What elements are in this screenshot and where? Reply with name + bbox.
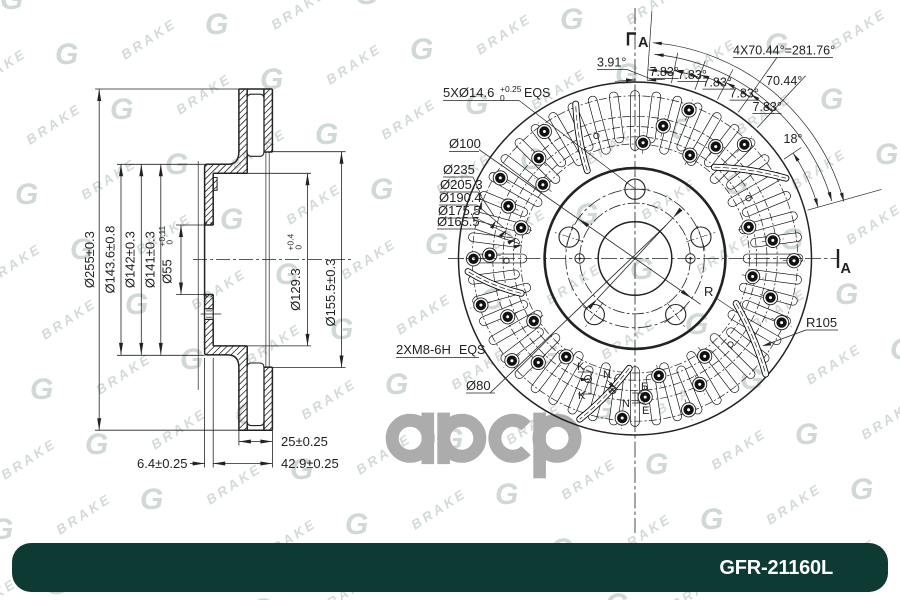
svg-text:Ø143.6±0.8: Ø143.6±0.8 <box>103 226 118 294</box>
svg-text:E: E <box>642 405 649 417</box>
svg-text:G: G <box>0 0 23 16</box>
svg-text:7.83°: 7.83° <box>753 100 782 114</box>
svg-text:G: G <box>820 83 843 116</box>
svg-text:N: N <box>622 398 630 410</box>
svg-text:Ø55: Ø55 <box>160 259 175 284</box>
svg-text:42.9±0.25: 42.9±0.25 <box>281 456 339 471</box>
svg-text:G: G <box>180 343 203 376</box>
svg-text:7.83°: 7.83° <box>703 76 732 90</box>
svg-text:G: G <box>890 333 900 366</box>
svg-text:Ø155.5±0.3: Ø155.5±0.3 <box>323 259 338 327</box>
svg-text:0: 0 <box>165 240 175 245</box>
svg-text:G: G <box>55 38 78 71</box>
svg-text:G: G <box>110 93 133 126</box>
svg-text:25±0.25: 25±0.25 <box>281 434 328 449</box>
svg-text:G: G <box>140 483 163 516</box>
svg-text:G: G <box>30 373 53 406</box>
svg-text:G: G <box>850 473 873 506</box>
svg-text:G: G <box>795 418 818 451</box>
svg-text:0: 0 <box>500 93 505 103</box>
svg-text:K: K <box>578 390 586 402</box>
svg-text:Ø129.3: Ø129.3 <box>288 268 303 311</box>
svg-text:Ø100: Ø100 <box>449 136 481 151</box>
svg-text:Ø165.5: Ø165.5 <box>437 214 480 229</box>
svg-text:Ø141±0.3: Ø141±0.3 <box>143 231 158 288</box>
svg-text:R105: R105 <box>806 315 837 330</box>
svg-text:Ø235: Ø235 <box>443 162 475 177</box>
svg-text:0: 0 <box>294 245 304 250</box>
svg-text:G: G <box>700 503 723 536</box>
svg-text:G: G <box>495 478 518 511</box>
svg-text:G: G <box>220 203 243 236</box>
svg-text:R: R <box>704 284 713 299</box>
svg-text:G: G <box>345 508 368 541</box>
svg-text:EQS: EQS <box>524 86 550 100</box>
svg-text:5XØ14.6: 5XØ14.6 <box>443 85 494 100</box>
svg-text:G: G <box>385 368 408 401</box>
svg-text:2XM8-6H: 2XM8-6H <box>396 342 451 357</box>
svg-text:Б: Б <box>641 381 648 393</box>
svg-text:G: G <box>835 278 858 311</box>
svg-text:G: G <box>630 253 653 286</box>
svg-text:Ø255±0.3: Ø255±0.3 <box>82 231 97 288</box>
svg-text:G: G <box>370 173 393 206</box>
svg-text:G: G <box>875 138 898 171</box>
svg-text:4X70.44°=281.76°: 4X70.44°=281.76° <box>733 44 835 58</box>
svg-text:G: G <box>15 178 38 211</box>
svg-text:G: G <box>425 228 448 261</box>
svg-text:K: K <box>577 361 585 373</box>
svg-text:3.91°: 3.91° <box>597 56 626 70</box>
svg-text:18°: 18° <box>784 132 803 146</box>
svg-text:G: G <box>205 8 228 41</box>
svg-text:G: G <box>315 118 338 151</box>
svg-text:G: G <box>560 3 583 36</box>
svg-text:G: G <box>250 593 273 600</box>
svg-text:Ø142±0.3: Ø142±0.3 <box>123 231 138 288</box>
svg-text:G: G <box>645 448 668 481</box>
svg-text:G: G <box>710 0 733 6</box>
svg-text:G: G <box>410 33 433 66</box>
svg-text:G: G <box>355 0 378 11</box>
svg-text:G: G <box>0 513 13 546</box>
svg-text:70.44°: 70.44° <box>766 74 802 88</box>
svg-text:N: N <box>603 369 611 381</box>
svg-text:7.83°: 7.83° <box>650 65 679 79</box>
svg-text:G: G <box>85 428 108 461</box>
svg-text:7.83°: 7.83° <box>730 87 759 101</box>
svg-text:G: G <box>125 288 148 321</box>
svg-text:6.4±0.25: 6.4±0.25 <box>137 456 188 471</box>
svg-text:Ø80: Ø80 <box>466 378 491 393</box>
svg-text:A: A <box>841 261 852 277</box>
svg-text:A: A <box>638 35 649 51</box>
